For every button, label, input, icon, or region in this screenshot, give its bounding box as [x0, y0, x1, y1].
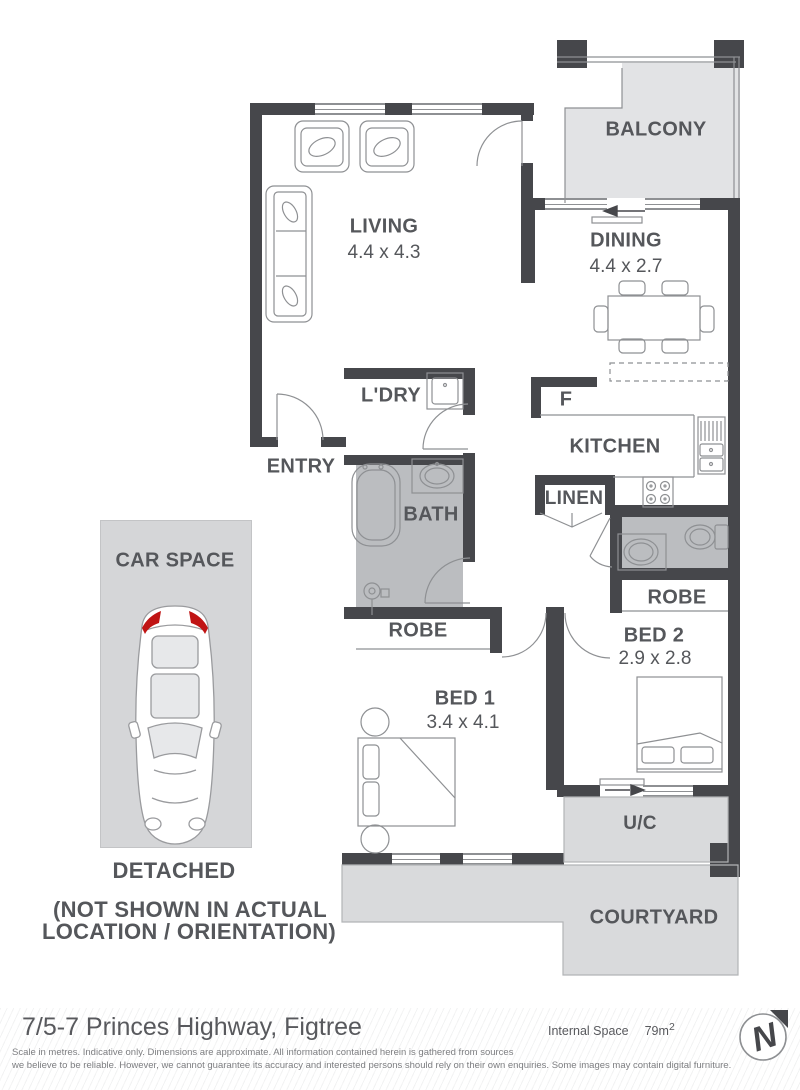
- label-bed2-dims: 2.9 x 2.8: [619, 648, 692, 670]
- label-bed2: BED 2: [624, 625, 684, 648]
- internal-space-value: 79m: [645, 1024, 669, 1038]
- label-living-dims: 4.4 x 4.3: [348, 242, 421, 264]
- label-robe-bed1: ROBE: [389, 620, 448, 643]
- car-roof: [151, 674, 199, 718]
- label-living: LIVING: [350, 216, 418, 239]
- bathtub: [352, 464, 400, 546]
- car-windshield: [148, 723, 202, 758]
- armchair: [295, 121, 349, 172]
- car-icon: [122, 596, 228, 848]
- laundry-door: [423, 404, 468, 449]
- car-headlight: [189, 818, 205, 830]
- slider-panel: [592, 217, 642, 223]
- sofa: [266, 186, 312, 322]
- wc-door: [590, 518, 612, 567]
- bed1-door: [502, 613, 546, 657]
- label-bed1: BED 1: [435, 688, 495, 711]
- armchair: [360, 121, 414, 172]
- label-carspace: CAR SPACE: [115, 550, 234, 573]
- label-linen: LINEN: [545, 488, 604, 510]
- label-uc: U/C: [623, 813, 657, 835]
- label-bed1-dims: 3.4 x 4.1: [427, 712, 500, 734]
- disclaimer-line1: Scale in metres. Indicative only. Dimens…: [12, 1046, 731, 1059]
- balcony-door: [477, 121, 522, 166]
- label-robe-bed2: ROBE: [648, 587, 707, 610]
- toilet: [685, 525, 728, 549]
- label-detached: DETACHED: [113, 858, 236, 884]
- shower-rose: [364, 583, 389, 615]
- label-note-line2: LOCATION / ORIENTATION): [42, 919, 336, 945]
- label-fridge: F: [560, 389, 573, 412]
- bath-door: [425, 558, 470, 603]
- north-compass-icon: N: [734, 1006, 792, 1064]
- overhead-cupboards: [610, 363, 728, 381]
- linen-bifold-doors: [540, 513, 602, 527]
- label-dining: DINING: [590, 230, 662, 253]
- bed2-door: [565, 613, 610, 658]
- bath-vanity: [412, 459, 463, 493]
- floorplan-canvas: BALCONY LIVING 4.4 x 4.3 DINING 4.4 x 2.…: [0, 0, 800, 1090]
- label-entry: ENTRY: [267, 456, 336, 479]
- kitchen-sink: [698, 417, 725, 474]
- bed2-furniture: [637, 677, 722, 772]
- slider-arrow: [604, 206, 645, 795]
- entry-door: [277, 394, 323, 440]
- label-kitchen: KITCHEN: [570, 436, 661, 459]
- label-dining-dims: 4.4 x 2.7: [590, 256, 663, 278]
- internal-space-superscript: 2: [669, 1022, 675, 1033]
- slider-panel: [600, 779, 644, 785]
- disclaimer-line2: we believe to be reliable. However, we c…: [12, 1059, 731, 1072]
- laundry-trough: [427, 373, 463, 409]
- label-courtyard: COURTYARD: [590, 907, 719, 930]
- wc-basin: [618, 534, 666, 570]
- car-headlight: [145, 818, 161, 830]
- disclaimer-text: Scale in metres. Indicative only. Dimens…: [12, 1046, 731, 1072]
- internal-space-label: Internal Space: [548, 1024, 629, 1038]
- label-balcony: BALCONY: [606, 119, 707, 142]
- label-laundry: L'DRY: [361, 385, 421, 408]
- car-rear-window: [152, 636, 198, 668]
- cooktop: [643, 477, 673, 507]
- address-title: 7/5-7 Princes Highway, Figtree: [22, 1013, 362, 1042]
- dining-table: [594, 281, 714, 353]
- label-bath: BATH: [403, 504, 458, 527]
- internal-space: Internal Space79m2: [548, 1022, 675, 1038]
